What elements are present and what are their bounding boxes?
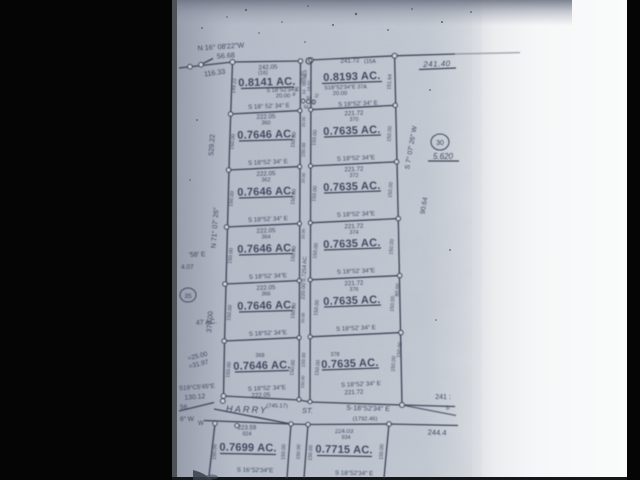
svg-text:150.00: 150.00 xyxy=(281,444,288,460)
svg-text:241.72: 241.72 xyxy=(340,57,360,65)
svg-text:529.22: 529.22 xyxy=(208,134,216,156)
svg-text:364: 364 xyxy=(262,235,271,241)
svg-text:0.7715 AC.: 0.7715 AC. xyxy=(315,444,372,457)
svg-text:N15: N15 xyxy=(302,69,307,78)
svg-text:372: 372 xyxy=(350,173,359,179)
svg-text:934: 934 xyxy=(342,435,351,441)
svg-text:924: 924 xyxy=(243,432,252,438)
svg-text:20.00: 20.00 xyxy=(301,172,307,183)
svg-text:(15A: (15A xyxy=(364,59,376,65)
svg-text:5.620: 5.620 xyxy=(433,152,454,161)
svg-text:′58′ E: ′58′ E xyxy=(189,251,206,259)
svg-text:W: W xyxy=(198,421,204,427)
svg-text:150.00: 150.00 xyxy=(387,182,394,198)
svg-text:20.00: 20.00 xyxy=(301,116,307,127)
svg-text:150.00: 150.00 xyxy=(308,445,315,461)
svg-text:(745.17): (745.17) xyxy=(266,404,288,410)
svg-text:150.00: 150.00 xyxy=(389,296,396,312)
svg-text:80.00: 80.00 xyxy=(394,283,401,297)
svg-text:(1792.46): (1792.46) xyxy=(353,417,378,423)
svg-text:20.00: 20.00 xyxy=(276,94,291,100)
svg-text:368: 368 xyxy=(256,353,265,359)
svg-text:241 :: 241 : xyxy=(435,394,451,401)
svg-text:20.00: 20.00 xyxy=(300,312,306,323)
svg-text:130.12: 130.12 xyxy=(184,393,205,401)
svg-text:150.00: 150.00 xyxy=(300,375,306,389)
svg-text:151.64: 151.64 xyxy=(386,74,393,90)
svg-text:360: 360 xyxy=(262,121,271,127)
svg-text:30: 30 xyxy=(436,140,444,147)
svg-text:37A: 37A xyxy=(357,85,367,91)
svg-text:I‹: I‹ xyxy=(446,405,450,412)
svg-text:378: 378 xyxy=(331,352,340,358)
svg-text:20.00: 20.00 xyxy=(333,91,348,97)
svg-text:56.68: 56.68 xyxy=(217,50,236,60)
svg-text:6″ W: 6″ W xyxy=(180,416,195,423)
svg-text:S 16°52′34″E: S 16°52′34″E xyxy=(237,467,274,475)
svg-text:376: 376 xyxy=(350,287,359,293)
svg-text:20.00: 20.00 xyxy=(300,228,306,239)
svg-text:150.00: 150.00 xyxy=(388,239,395,255)
svg-text:150.00: 150.00 xyxy=(301,352,308,367)
svg-text:150.00: 150.00 xyxy=(386,126,393,142)
svg-text:362: 362 xyxy=(262,178,271,184)
svg-text:S 18°52′34″ E: S 18°52′34″ E xyxy=(335,470,373,478)
svg-text:0.7699 AC.: 0.7699 AC. xyxy=(219,442,276,455)
svg-text:HARRY: HARRY xyxy=(226,404,269,415)
svg-text:18.52: 18.52 xyxy=(306,80,311,92)
svg-text:4.07: 4.07 xyxy=(181,264,194,271)
svg-text:222.05: 222.05 xyxy=(251,392,271,400)
svg-text:150.00: 150.00 xyxy=(212,444,219,460)
svg-text:34: 34 xyxy=(301,89,306,95)
svg-text:150.00: 150.00 xyxy=(301,142,308,157)
svg-text:ST.: ST. xyxy=(302,406,313,415)
svg-text:374: 374 xyxy=(350,230,359,236)
svg-text:—·: —· xyxy=(305,105,311,110)
svg-text:35: 35 xyxy=(184,293,192,300)
svg-text:S·18°52′34″ E: S·18°52′34″ E xyxy=(346,404,390,413)
svg-text:370: 370 xyxy=(350,117,359,123)
svg-text:150.00: 150.00 xyxy=(296,444,303,460)
svg-text:366: 366 xyxy=(262,292,271,298)
svg-text:221.72: 221.72 xyxy=(344,389,364,397)
svg-text:47 AC.: 47 AC. xyxy=(196,319,218,327)
svg-text:244.4: 244.4 xyxy=(428,428,447,438)
svg-text:241.40: 241.40 xyxy=(422,59,451,69)
svg-text:56: 56 xyxy=(180,404,188,411)
svg-text:150.00: 150.00 xyxy=(379,444,386,460)
